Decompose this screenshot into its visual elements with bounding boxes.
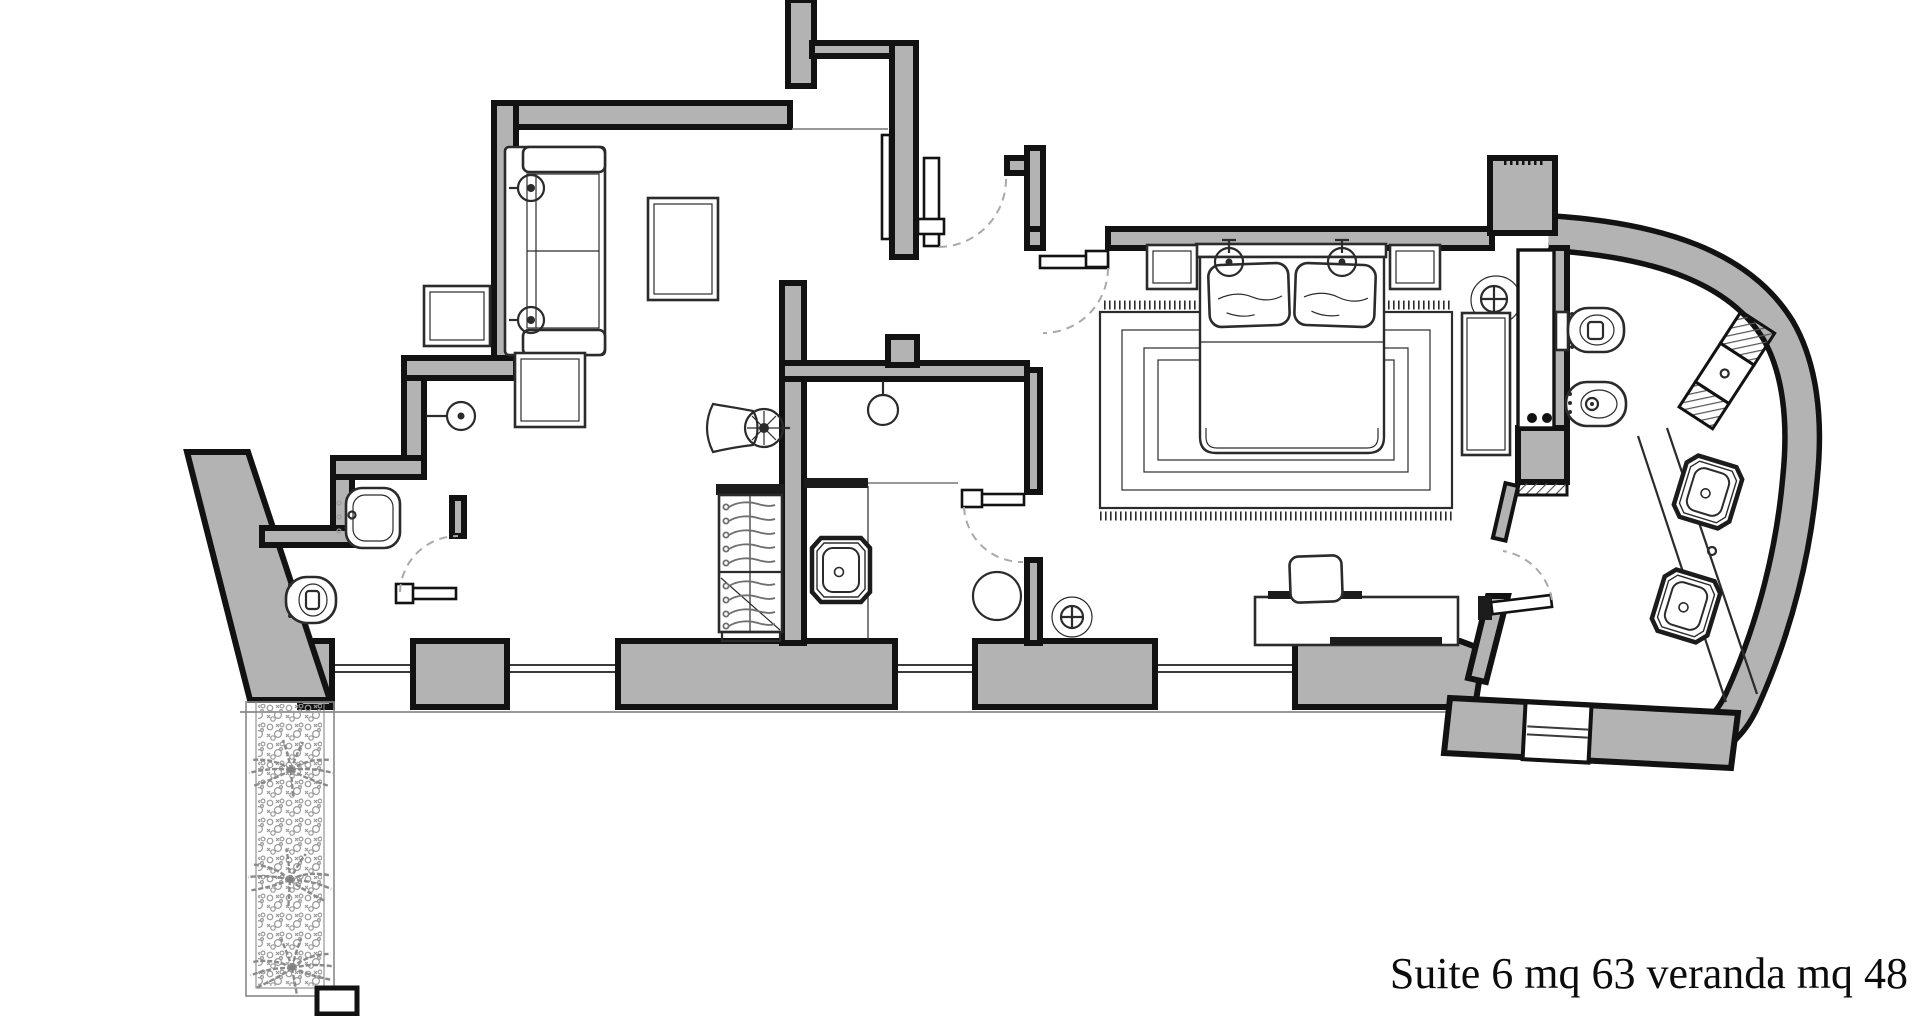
desk-icon [1255,555,1458,645]
middle-bathroom [804,381,1024,640]
square-table-icon [424,286,490,346]
veranda [245,702,357,1014]
wardrobe-column [1462,313,1510,455]
entry-side-wall [892,43,916,257]
wall-pier [975,641,1155,707]
southeast-window [1523,702,1592,762]
pillow [1294,263,1376,328]
door-jamb [452,498,464,536]
door-panel [882,135,890,239]
bedroom [1052,240,1554,645]
curved-wall-window [1679,311,1775,428]
coffee-table-icon [648,198,718,300]
desk-chair [1289,555,1343,603]
chair-icon [707,404,790,452]
nightstand-icon [1390,245,1440,289]
wardrobe-hangers-icon [716,484,784,641]
bedroom-door [1040,251,1108,333]
wall-pier [618,641,895,707]
washbasin-icon [1649,567,1723,645]
built-in-closet [1518,250,1554,428]
square-table-icon [515,353,585,427]
washbasin-icon [812,538,870,602]
living-top-wall [494,103,790,127]
bath1-top-wall [262,528,352,545]
floor-plan-page: Suite 6 mq 63 veranda mq 48 [0,0,1920,1016]
northeast-block [1490,158,1555,233]
veranda-pier [317,988,357,1014]
wall-pier [413,641,507,707]
door-middle-bath [962,490,1024,562]
entry-door [918,158,1006,247]
bath2-right-wall [1027,560,1040,643]
living-room [424,147,718,427]
floor-plan-drawing [0,0,1920,1016]
angled-jamb [1493,483,1518,540]
vegetation-icon [258,704,322,986]
bath2-right-wall [1027,370,1040,492]
washbasin-icon [1671,453,1745,531]
stool-icon [973,572,1021,620]
toilet-icon [286,577,336,623]
shower-partition [804,478,868,488]
ceiling-light-icon [868,381,898,425]
bidet-icon [1566,382,1626,426]
left-bathroom [286,402,475,623]
washbasin-icon [337,488,400,548]
sofa-armrest [523,147,605,172]
south-window-wall [240,596,1738,768]
plan-caption: Suite 6 mq 63 veranda mq 48 [1100,948,1908,999]
bath2-left-wall [782,283,804,643]
ceiling-light-icon [1052,597,1092,637]
sofa-armrest [523,330,605,355]
door-right-bath [1478,551,1552,620]
entry-top-wall [812,43,894,56]
hatched-sill [1518,482,1567,495]
dressing-area [707,404,790,641]
door-left-bath [396,536,458,603]
sconce-icon [426,402,475,430]
entry-spur-stub [1007,158,1027,173]
bath2-pier [888,337,917,365]
bath3-block [1518,428,1567,482]
right-bathroom [1556,308,1775,702]
nightstand-icon [1147,245,1197,289]
toilet-icon [1556,308,1624,352]
bedroom-top-wall-end [1027,229,1043,248]
